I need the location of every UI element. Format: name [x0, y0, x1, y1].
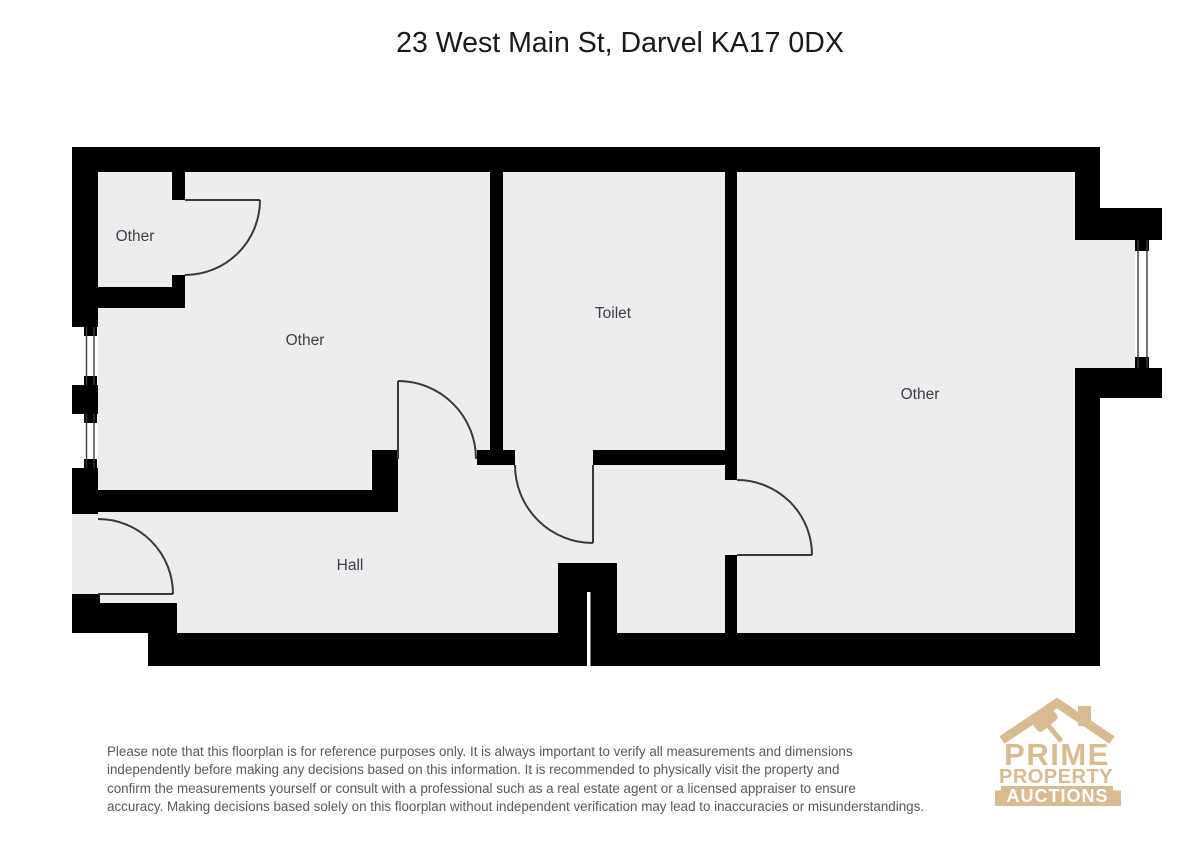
- disclaimer-text: Please note that this floorplan is for r…: [107, 743, 937, 816]
- disclaimer-line: independently before making any decision…: [107, 761, 937, 779]
- wall-gap-line: [587, 592, 591, 667]
- brand-logo: PRIME PROPERTY AUCTIONS: [993, 697, 1125, 811]
- disclaimer-line: confirm the measurements yourself or con…: [107, 780, 937, 798]
- window-left-lower: [84, 414, 97, 468]
- room-label-hall: Hall: [337, 557, 364, 574]
- disclaimer-line: accuracy. Making decisions based solely …: [107, 798, 937, 816]
- logo-text-property: PROPERTY: [999, 766, 1113, 788]
- logo-text-auctions: AUCTIONS: [1007, 786, 1109, 806]
- room-label-left-room: Other: [286, 332, 325, 349]
- room-label-small-room: Other: [116, 228, 155, 245]
- window-left-upper: [84, 327, 97, 385]
- room-label-toilet: Toilet: [595, 305, 632, 322]
- room-label-right-room: Other: [901, 386, 940, 403]
- window-bay-right: [1135, 240, 1149, 368]
- disclaimer-line: Please note that this floorplan is for r…: [107, 743, 937, 761]
